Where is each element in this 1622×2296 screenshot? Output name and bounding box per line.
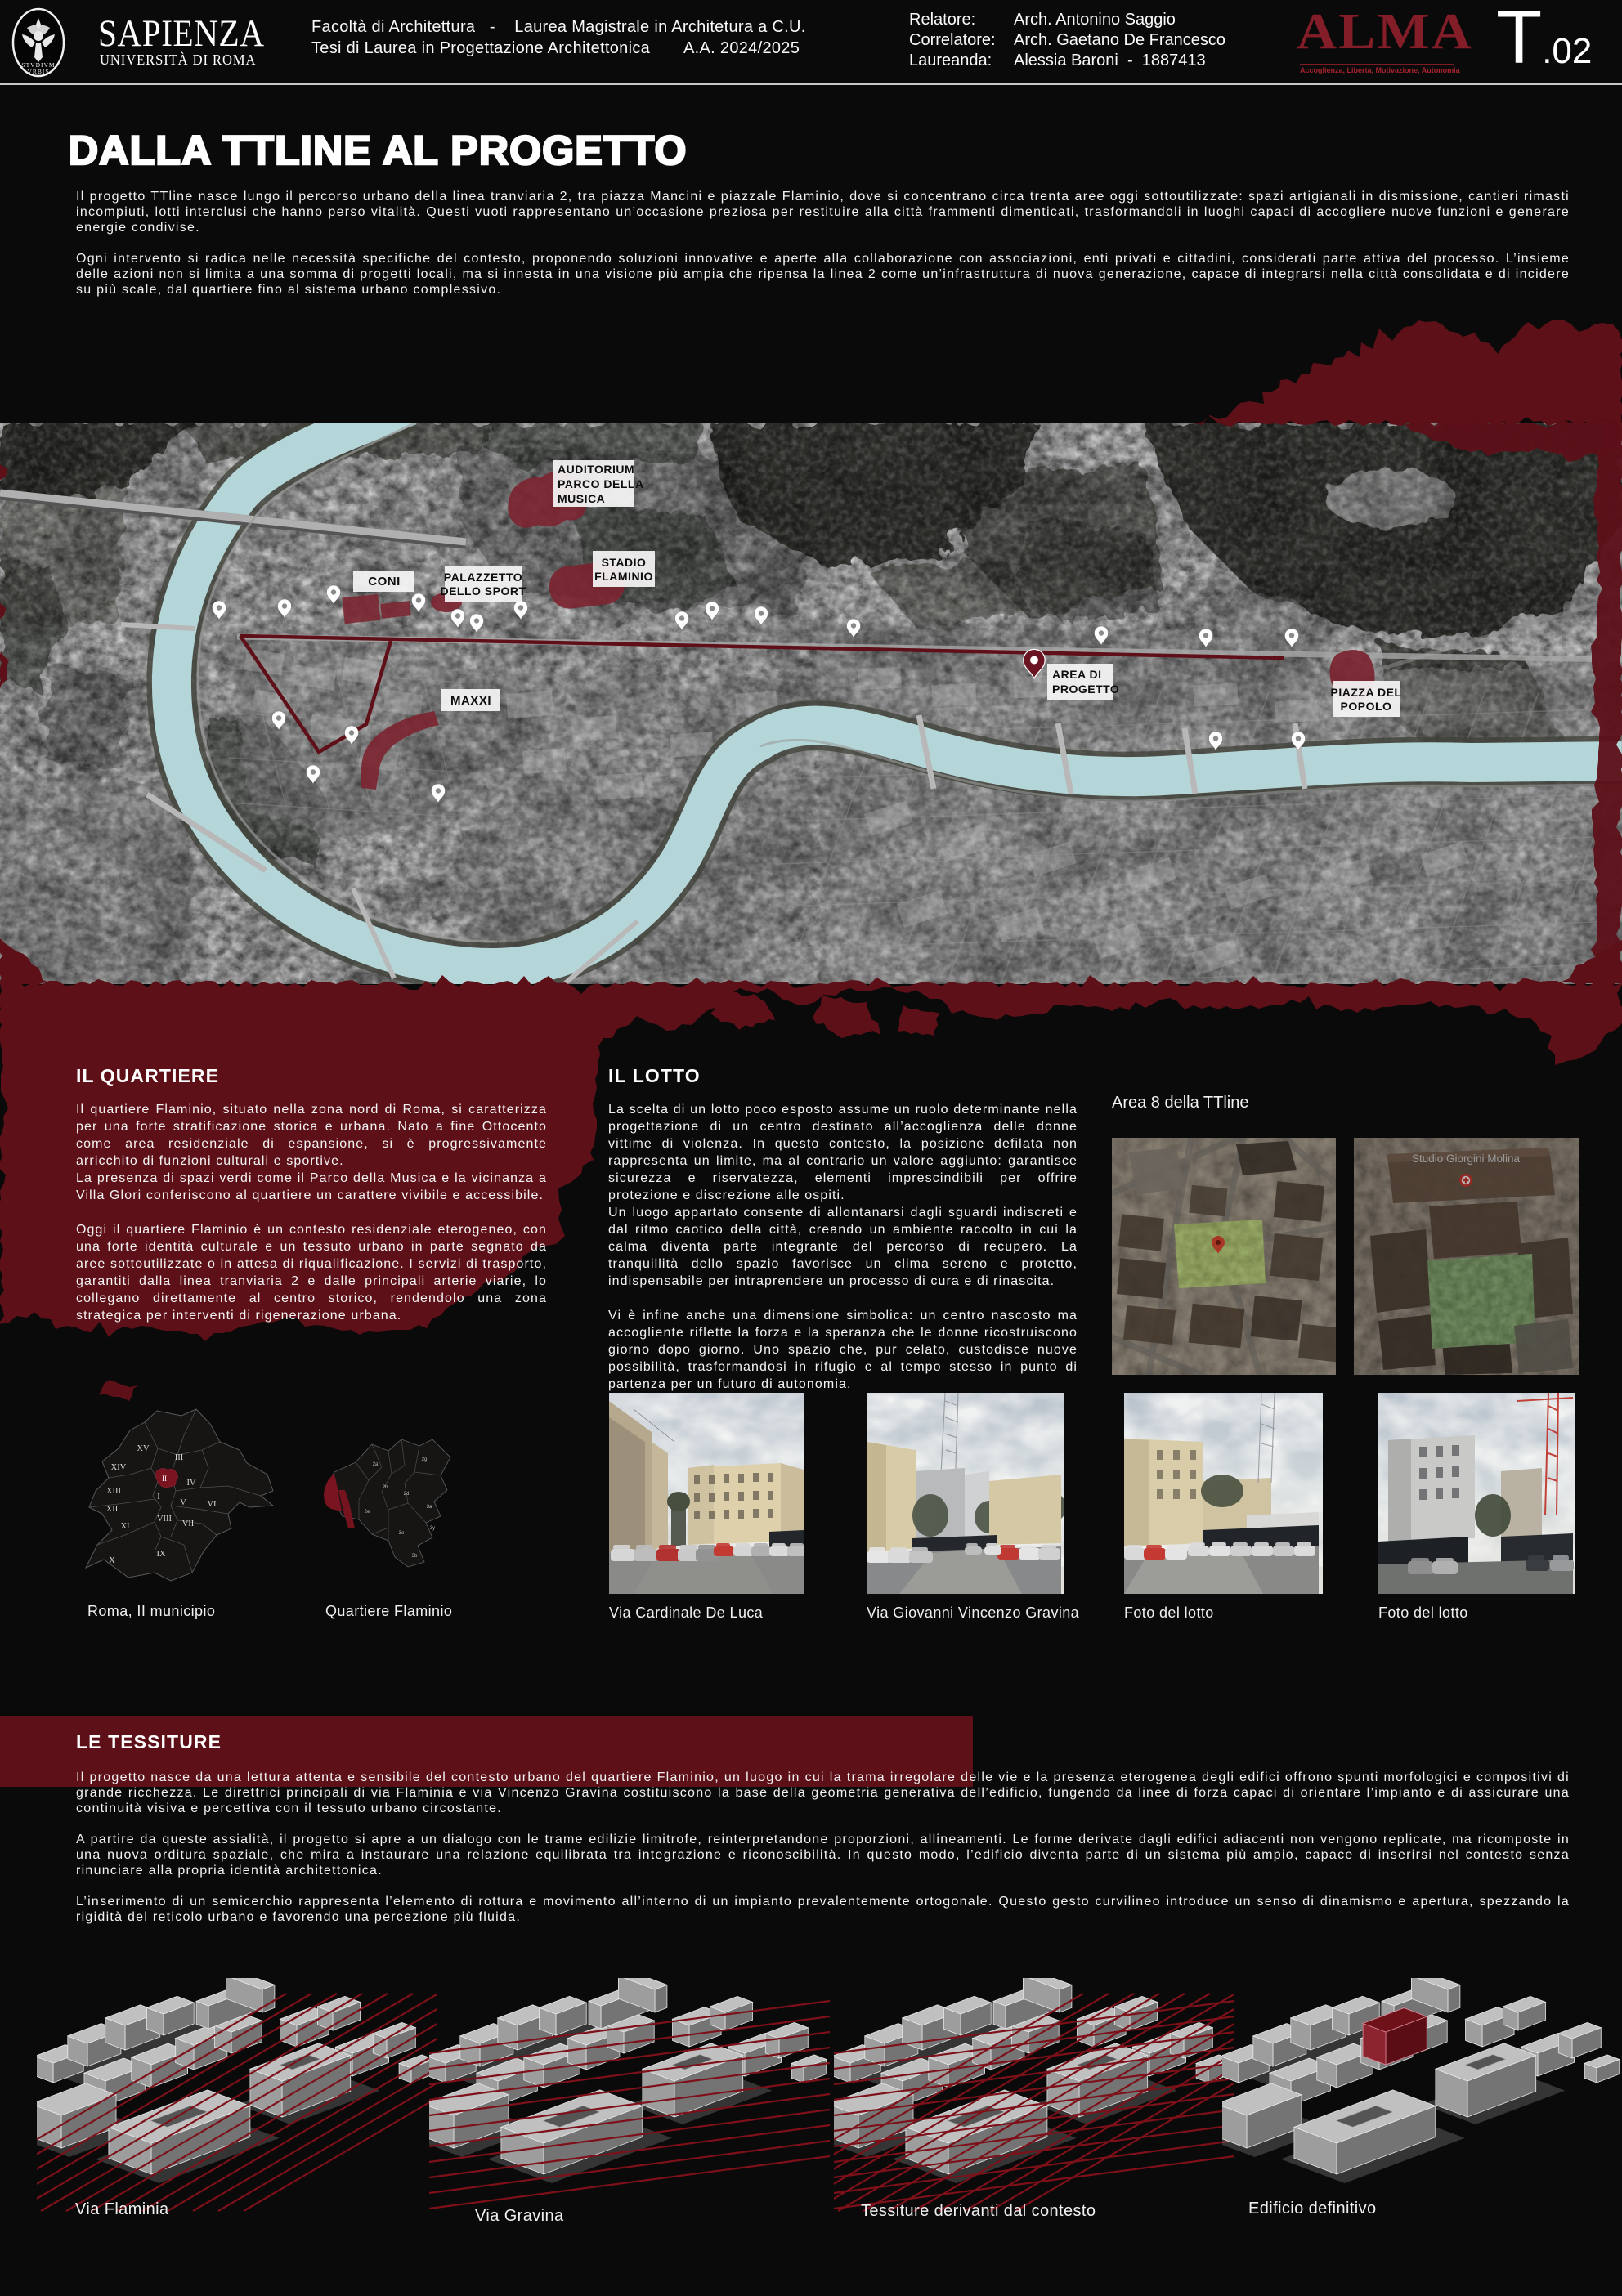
svg-text:V: V: [180, 1498, 186, 1507]
svg-text:XV: XV: [137, 1444, 150, 1453]
svg-text:IX: IX: [156, 1550, 165, 1559]
svg-text:VIII: VIII: [157, 1515, 173, 1524]
svg-text:VRBIS: VRBIS: [27, 68, 49, 75]
svg-text:I: I: [157, 1493, 160, 1502]
svg-text:2g: 2g: [422, 1457, 428, 1462]
svg-text:X: X: [109, 1556, 115, 1565]
svg-text:3a: 3a: [427, 1505, 432, 1510]
svg-text:II: II: [162, 1475, 167, 1483]
svg-text:XI: XI: [120, 1522, 130, 1531]
svg-text:2b: 2b: [383, 1485, 388, 1490]
svg-text:VI: VI: [207, 1500, 217, 1509]
svg-text:IV: IV: [186, 1479, 195, 1488]
svg-text:2a: 2a: [373, 1462, 379, 1467]
svg-text:XIII: XIII: [106, 1487, 122, 1496]
svg-text:XIV: XIV: [111, 1463, 127, 1472]
svg-text:3b: 3b: [412, 1554, 418, 1559]
svg-text:VII: VII: [182, 1519, 195, 1528]
svg-text:2e: 2e: [365, 1510, 370, 1515]
svg-text:2d: 2d: [404, 1492, 410, 1497]
svg-text:XII: XII: [106, 1505, 119, 1514]
svg-text:III: III: [175, 1453, 184, 1462]
svg-text:3y: 3y: [430, 1526, 435, 1531]
svg-text:3e: 3e: [399, 1531, 405, 1536]
